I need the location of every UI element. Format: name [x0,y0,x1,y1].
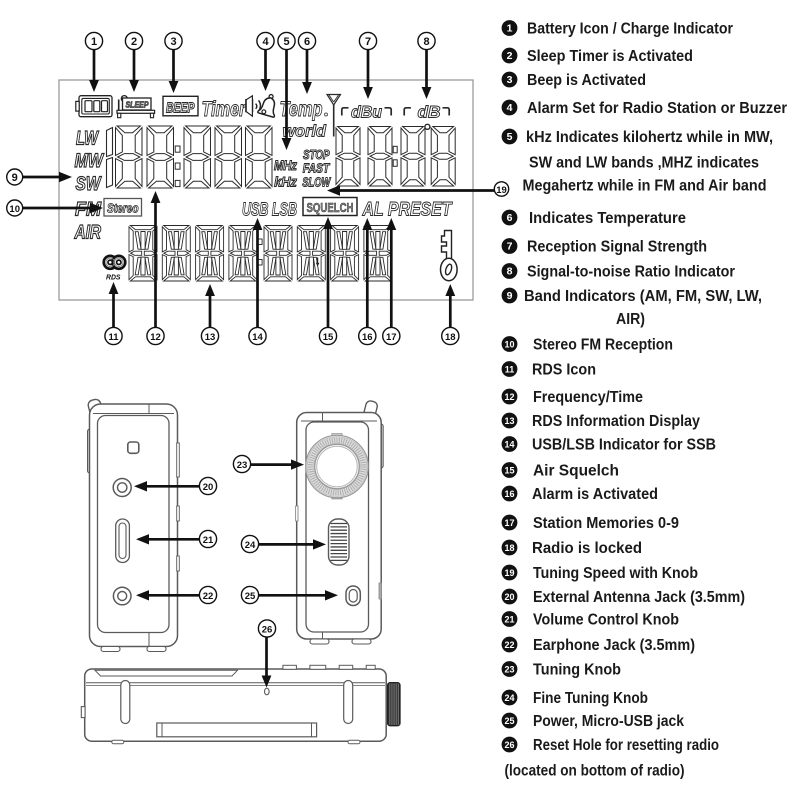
svg-text:SLEEP: SLEEP [126,100,149,110]
svg-text:1: 1 [507,23,513,35]
svg-text:9: 9 [12,172,18,184]
svg-text:Stereo FM Reception: Stereo FM Reception [533,337,673,354]
svg-text:Stereo: Stereo [107,202,139,216]
svg-text:20: 20 [504,592,514,602]
svg-text:External Antenna Jack (3.5mm): External Antenna Jack (3.5mm) [533,589,745,606]
svg-text:Power, Micro-USB jack: Power, Micro-USB jack [533,713,684,730]
svg-text:23: 23 [504,665,514,675]
svg-text:kHz Indicates kilohertz while: kHz Indicates kilohertz while in MW, [526,129,773,146]
svg-text:19: 19 [504,568,514,578]
svg-text:Fine Tuning Knob: Fine Tuning Knob [533,690,648,707]
svg-text:Alarm is Activated: Alarm is Activated [532,486,658,503]
svg-text:16: 16 [362,332,373,343]
svg-text:12: 12 [150,332,161,343]
svg-text:3: 3 [507,74,513,86]
svg-text:SW: SW [76,174,103,195]
svg-text:13: 13 [205,332,216,343]
svg-text:5: 5 [507,131,513,143]
svg-text:18: 18 [504,543,514,553]
svg-text:13: 13 [504,416,514,426]
svg-text:26: 26 [262,624,273,635]
svg-text:Alarm Set for Radio Station or: Alarm Set for Radio Station or Buzzer [527,100,787,117]
svg-text:RDS Information Display: RDS Information Display [532,413,700,430]
svg-text:24: 24 [245,540,256,551]
svg-text:Tuning Knob: Tuning Knob [533,662,621,679]
svg-text:Band Indicators (AM, FM, SW, L: Band Indicators (AM, FM, SW, LW, [524,288,762,305]
svg-text:1: 1 [91,36,97,48]
svg-text:7: 7 [365,36,371,48]
svg-text:Frequency/Time: Frequency/Time [533,389,643,406]
svg-text:(located on bottom of radio): (located on bottom of radio) [505,763,685,780]
svg-text:7: 7 [507,241,513,253]
svg-text:21: 21 [504,615,514,625]
svg-text:17: 17 [504,518,514,528]
svg-text:kHz: kHz [274,174,297,189]
svg-text:SLOW: SLOW [302,176,331,190]
svg-text:AL PRESET: AL PRESET [362,200,453,221]
svg-text:Air Squelch: Air Squelch [533,463,619,480]
svg-text:3: 3 [170,36,176,48]
svg-text:AIR): AIR) [616,311,645,328]
svg-text:4: 4 [507,102,513,114]
svg-text:Timer: Timer [202,98,247,121]
svg-text:Beep is Activated: Beep is Activated [527,72,646,89]
svg-text:12: 12 [504,392,514,402]
svg-text:8: 8 [507,266,513,278]
svg-text:16: 16 [504,489,514,499]
svg-text:Indicates Temperature: Indicates Temperature [529,210,686,227]
svg-text:17: 17 [386,332,397,343]
svg-text:BEEP: BEEP [166,100,195,116]
svg-text:dB: dB [418,103,441,122]
svg-text:MHz: MHz [274,158,297,173]
svg-text:4: 4 [262,36,269,48]
svg-text:22: 22 [504,640,514,650]
svg-text:AIR: AIR [74,223,102,244]
svg-text:25: 25 [245,591,256,602]
svg-text:RDS: RDS [106,275,121,282]
svg-text:MW: MW [75,151,105,172]
svg-text:8: 8 [423,36,429,48]
svg-text:FAST: FAST [303,161,331,175]
svg-text:SW and LW bands ,MHZ indicates: SW and LW bands ,MHZ indicates [529,155,759,172]
svg-text:Volume Control Knob: Volume Control Knob [533,612,679,629]
svg-text:Signal-to-noise Ratio Indicato: Signal-to-noise Ratio Indicator [527,264,735,281]
svg-text:6: 6 [507,212,513,224]
svg-text:RDS Icon: RDS Icon [532,362,596,379]
svg-text:USB/LSB Indicator for SSB: USB/LSB Indicator for SSB [532,437,716,454]
svg-text:19: 19 [496,185,507,196]
svg-text:20: 20 [203,482,214,493]
svg-text:5: 5 [283,36,289,48]
svg-text:Earphone Jack (3.5mm): Earphone Jack (3.5mm) [533,637,695,654]
svg-text:23: 23 [237,460,248,471]
svg-text:14: 14 [252,332,263,343]
svg-text:2: 2 [507,50,513,62]
svg-text:world: world [283,122,327,141]
svg-text:24: 24 [504,693,514,703]
svg-text:11: 11 [108,332,119,343]
svg-text:22: 22 [203,591,214,602]
svg-text:SQUELCH: SQUELCH [307,201,354,215]
svg-text:Megahertz while in FM and Air: Megahertz while in FM and Air band [523,178,767,195]
svg-text:Reception Signal Strength: Reception Signal Strength [527,239,707,256]
svg-text:11: 11 [505,365,515,375]
svg-text:25: 25 [504,716,514,726]
svg-text:14: 14 [504,440,514,450]
svg-text:2: 2 [131,36,137,48]
svg-text:26: 26 [504,740,514,750]
svg-text:10: 10 [504,340,514,350]
svg-text:15: 15 [323,332,334,343]
svg-text:STOP: STOP [303,148,330,162]
svg-text:9: 9 [507,290,513,302]
svg-text:21: 21 [203,535,214,546]
svg-text:6: 6 [304,36,310,48]
svg-text:10: 10 [9,204,20,215]
svg-text:LW: LW [76,129,100,150]
svg-text:USB LSB: USB LSB [242,200,297,220]
svg-text:Radio is locked: Radio is locked [532,540,642,557]
svg-text:Battery Icon / Charge Indicato: Battery Icon / Charge Indicator [527,21,733,38]
svg-text:Tuning Speed with Knob: Tuning Speed with Knob [533,565,698,582]
svg-text:dBu: dBu [351,103,383,122]
svg-text:18: 18 [445,332,456,343]
svg-text:FM: FM [75,200,102,221]
svg-text:Reset Hole for resetting radio: Reset Hole for resetting radio [533,737,719,754]
svg-text:Station Memories 0-9: Station Memories 0-9 [533,515,679,532]
svg-text:15: 15 [504,466,514,476]
svg-text:Sleep Timer is Activated: Sleep Timer is Activated [527,48,693,65]
